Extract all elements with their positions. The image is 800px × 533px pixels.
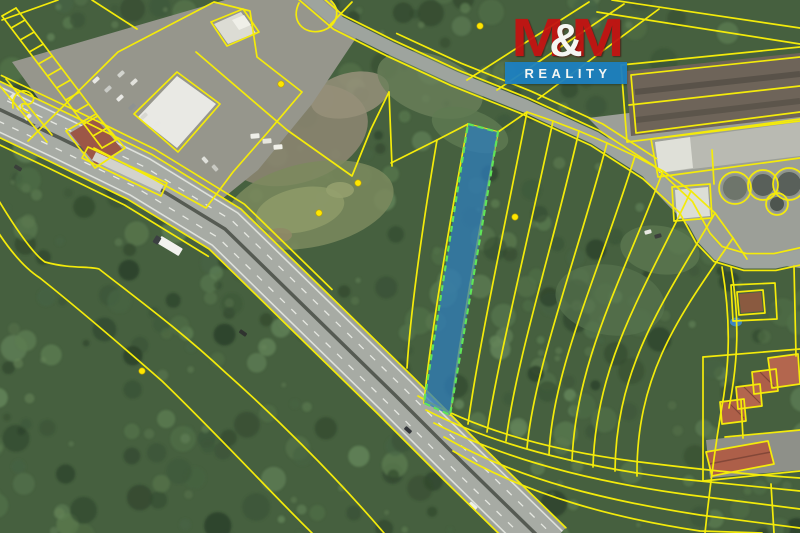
mm-reality-logo: M & M REALITY: [505, 12, 627, 84]
aerial-map: [0, 0, 800, 533]
logo-mm-text: M & M: [505, 12, 627, 60]
logo-ampersand: &: [549, 20, 582, 60]
map-viewport[interactable]: M & M REALITY: [0, 0, 800, 533]
